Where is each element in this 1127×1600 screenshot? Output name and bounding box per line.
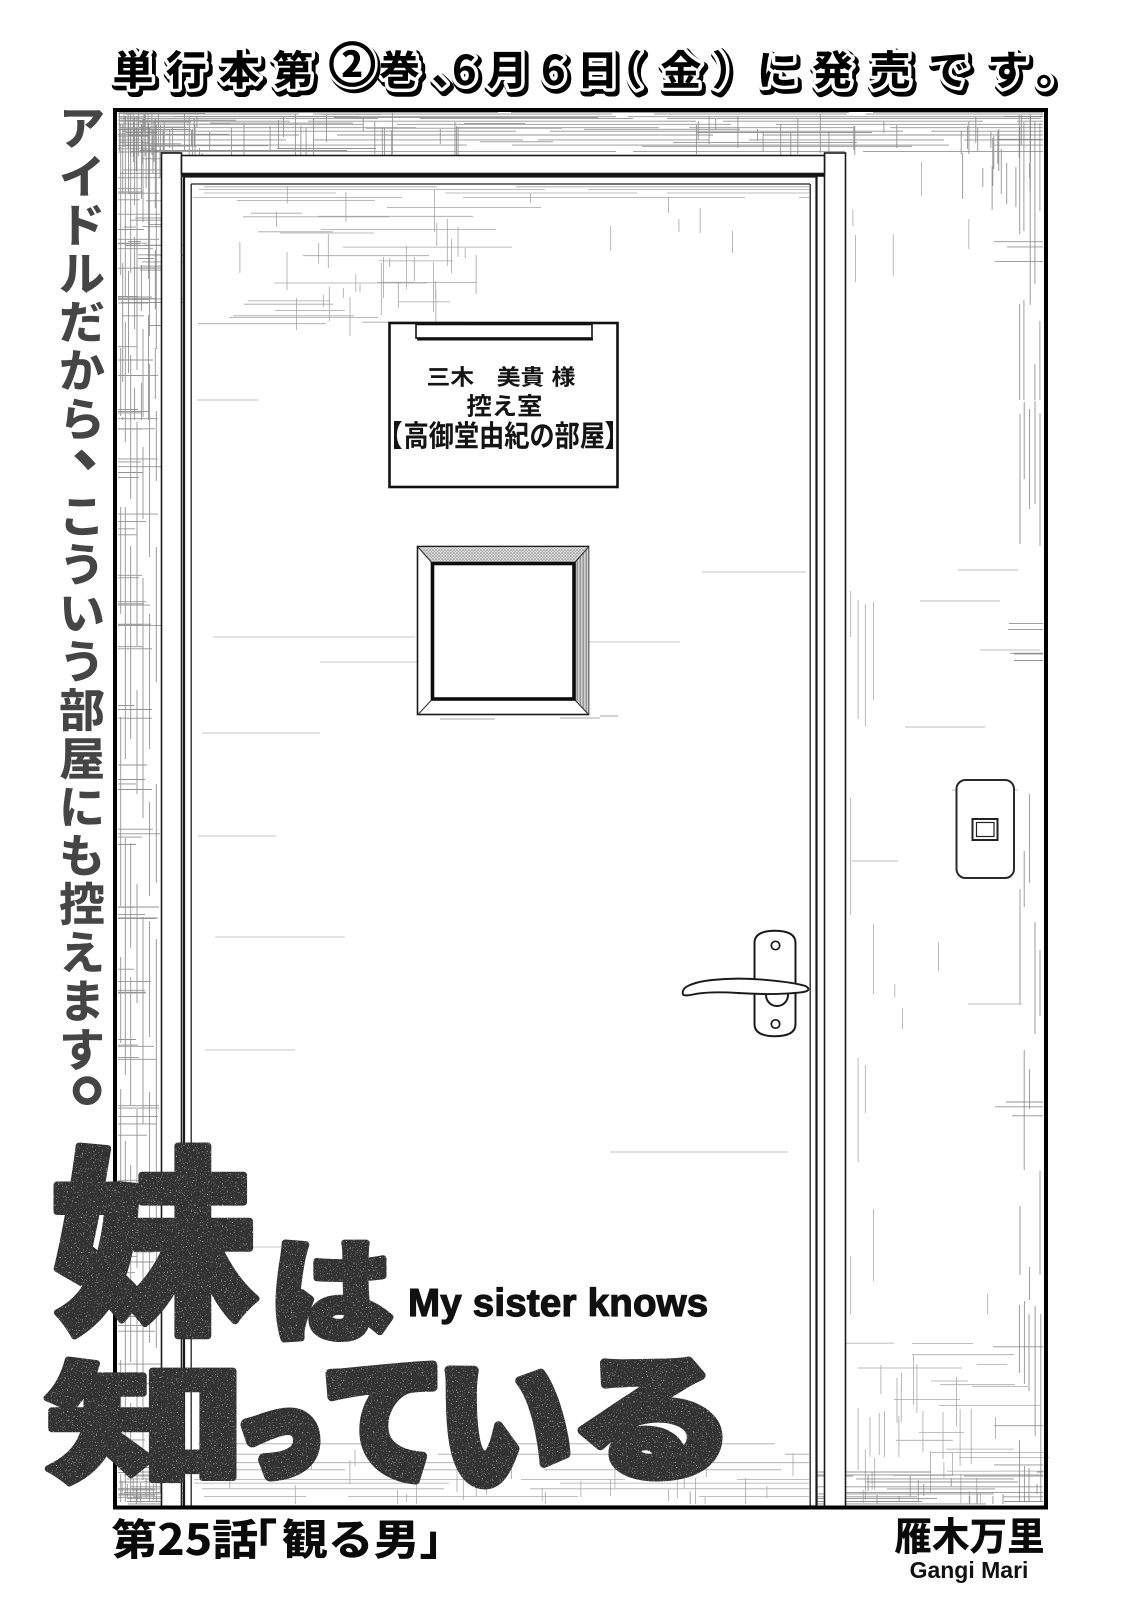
svg-text:My sister knows: My sister knows [408,1282,708,1325]
svg-text:Gangi Mari: Gangi Mari [910,1557,1029,1583]
